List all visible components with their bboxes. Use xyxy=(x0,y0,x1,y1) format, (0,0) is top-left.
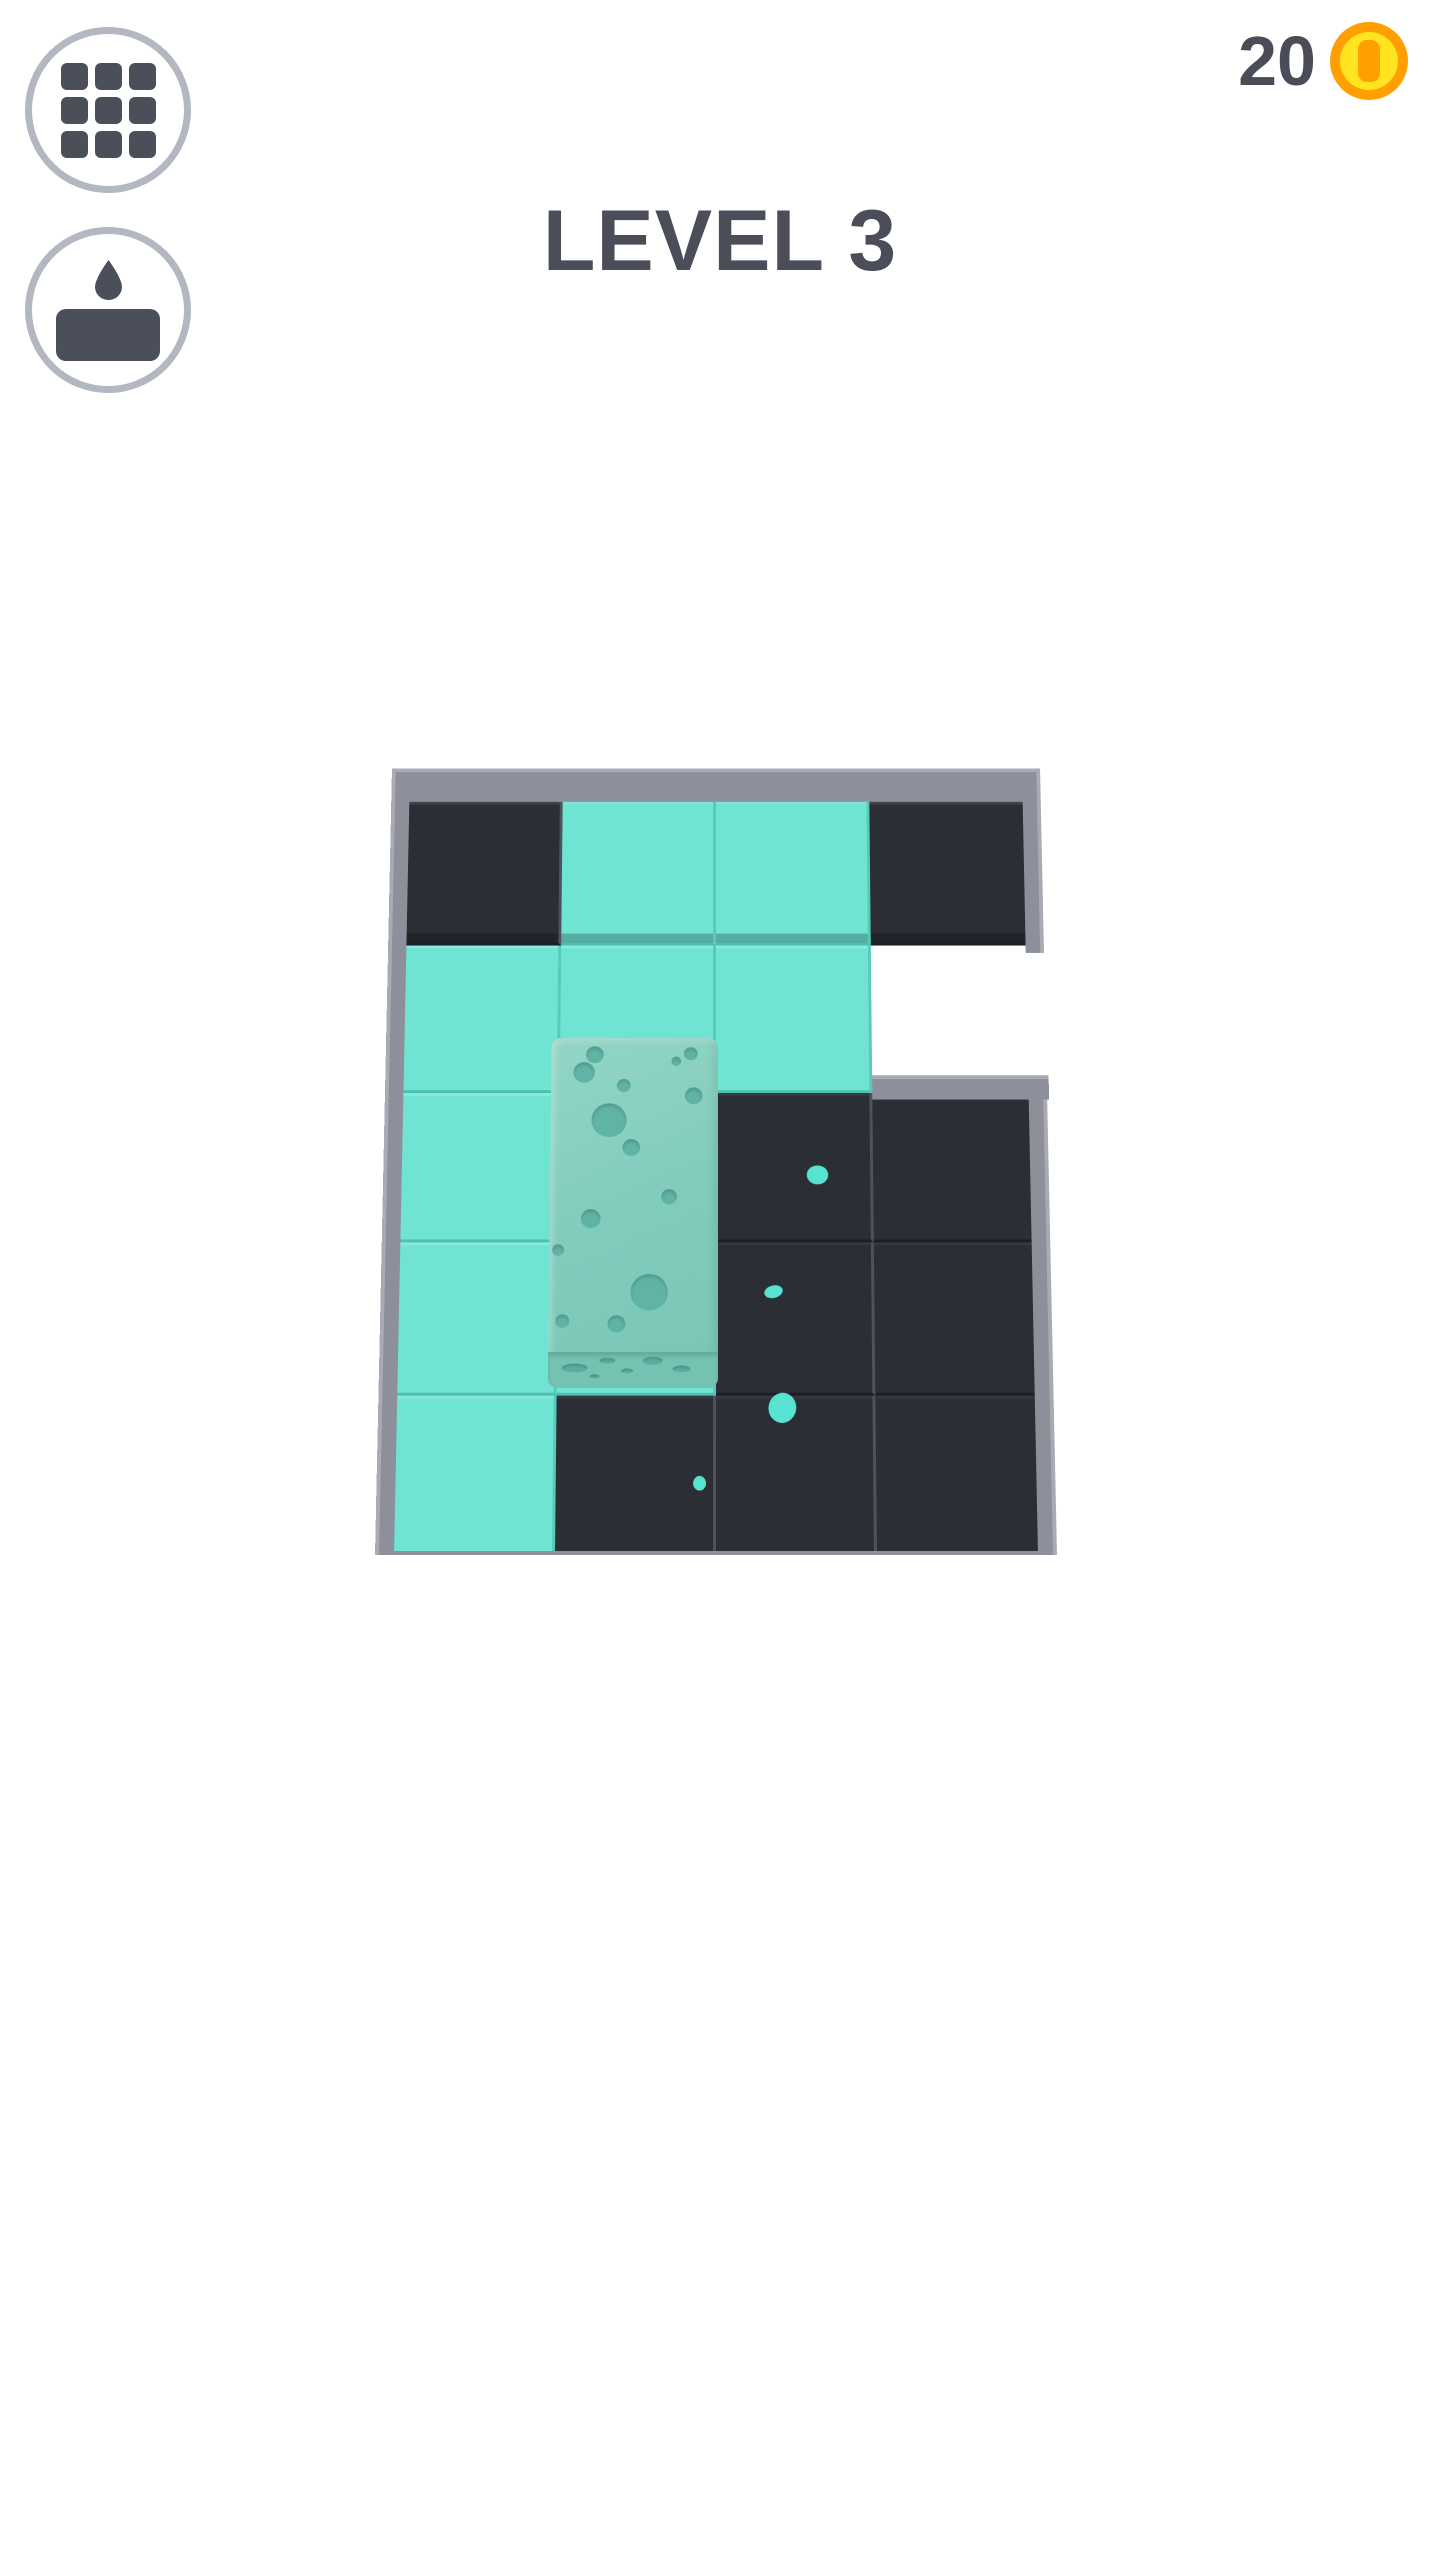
tile-r3c2-dark xyxy=(716,1243,875,1396)
sponge-hole xyxy=(671,1057,681,1066)
sponge-hole xyxy=(617,1079,631,1092)
sponge-face-hole xyxy=(562,1364,588,1373)
sponge-hole xyxy=(581,1209,601,1228)
sponge-face-hole xyxy=(643,1357,663,1365)
sponge-hole xyxy=(661,1189,677,1204)
sponge-face-hole xyxy=(589,1374,599,1378)
tile-r2c2-dark xyxy=(716,1093,874,1243)
sponge-block[interactable] xyxy=(548,1038,718,1388)
game-board[interactable] xyxy=(378,771,1054,1555)
wall-edge-left xyxy=(375,769,396,1555)
tile-r2c3-dark xyxy=(872,1093,1031,1243)
wall-edge-right-lower xyxy=(1043,1098,1057,1555)
sponge-hole xyxy=(552,1244,564,1255)
sponge-front-face xyxy=(548,1352,718,1388)
notch-wall-band xyxy=(872,1075,1049,1099)
grid-icon xyxy=(61,63,156,158)
tile-r1c0-teal xyxy=(403,946,561,1093)
sponge-hole xyxy=(555,1314,569,1328)
tile-r0c1-teal xyxy=(561,802,716,946)
paint-splat xyxy=(693,1475,706,1490)
tile-r4c2-dark xyxy=(716,1395,877,1551)
sponge-hole xyxy=(573,1062,595,1083)
tile-r0c0-dark xyxy=(406,802,562,946)
sponge-hole xyxy=(608,1315,626,1332)
levels-menu-button[interactable] xyxy=(25,27,191,193)
sponge-face-hole xyxy=(599,1358,615,1364)
wall-edge-top xyxy=(392,769,1040,773)
level-title: LEVEL 3 xyxy=(0,192,1440,291)
coin-icon xyxy=(1330,22,1408,100)
sponge-hole xyxy=(586,1046,604,1063)
game-screen: { "header": { "level_title": "LEVEL 3" }… xyxy=(0,0,1440,2560)
sponge-hole xyxy=(684,1047,698,1060)
tile-r2c0-teal xyxy=(400,1093,559,1243)
tile-r4c3-dark xyxy=(875,1395,1038,1551)
tile-r4c0-teal xyxy=(394,1395,557,1551)
tile-r3c0-teal xyxy=(397,1243,558,1396)
sponge-face-hole xyxy=(621,1368,633,1373)
wall-edge-right-upper xyxy=(1036,769,1044,953)
sponge-hole xyxy=(630,1274,668,1311)
tile-r0c2-teal xyxy=(716,802,871,946)
board-notch xyxy=(871,953,1049,1075)
paint-splat xyxy=(807,1165,829,1184)
sponge-face-hole xyxy=(673,1366,691,1373)
tile-r1c2-teal xyxy=(716,946,872,1093)
coin-count: 20 xyxy=(1238,22,1316,100)
coin-counter: 20 xyxy=(1238,22,1408,100)
sponge-hole xyxy=(622,1139,640,1156)
tile-r3c3-dark xyxy=(874,1243,1035,1396)
tile-r4c1-dark xyxy=(555,1395,716,1551)
sponge-hole xyxy=(591,1103,626,1137)
sponge-hole xyxy=(685,1087,703,1104)
tile-r0c3-dark xyxy=(869,802,1025,946)
